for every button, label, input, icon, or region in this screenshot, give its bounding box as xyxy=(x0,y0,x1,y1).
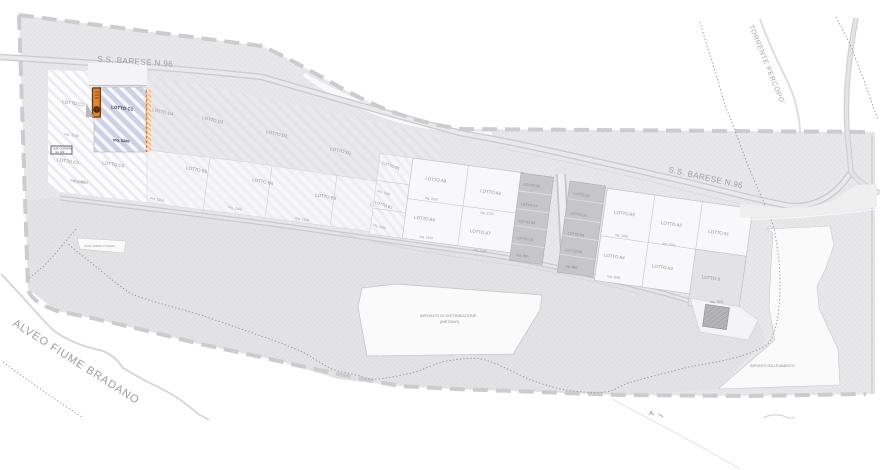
svg-text:mq. 460: mq. 460 xyxy=(55,150,65,154)
svg-text:IMPIANTO SOLLEVAMENTO: IMPIANTO SOLLEVAMENTO xyxy=(750,364,795,368)
svg-text:mq. 1520: mq. 1520 xyxy=(710,300,724,304)
svg-text:(METANO): (METANO) xyxy=(440,319,460,324)
svg-text:ZONA VERDE ATTREZZ.: ZONA VERDE ATTREZZ. xyxy=(84,244,116,248)
svg-text:IMPIANTO DI DISTRIBUZIONE: IMPIANTO DI DISTRIBUZIONE xyxy=(420,313,477,318)
